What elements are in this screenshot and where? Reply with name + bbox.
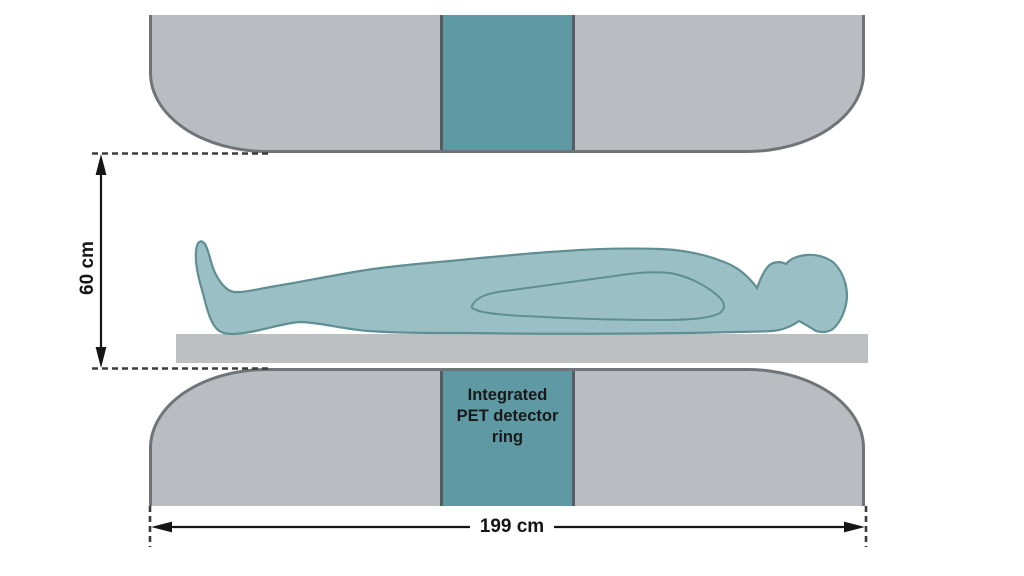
patient-figure <box>196 241 847 334</box>
pet-detector-label-line1: Integrated <box>443 385 572 406</box>
gantry-bottom: Integrated PET detector ring <box>149 368 865 506</box>
height-dimension-label: 60 cm <box>77 228 99 308</box>
gantry-top <box>149 15 865 153</box>
pet-detector-label-line2: PET detector <box>443 406 572 427</box>
pet-detector-bottom: Integrated PET detector ring <box>440 371 575 506</box>
pet-detector-label: Integrated PET detector ring <box>443 385 572 448</box>
patient-arm-outline <box>472 272 724 320</box>
pet-detector-label-line3: ring <box>443 427 572 448</box>
width-dimension-label: 199 cm <box>452 516 572 538</box>
patient-table <box>176 334 868 363</box>
pet-detector-top <box>440 15 575 150</box>
